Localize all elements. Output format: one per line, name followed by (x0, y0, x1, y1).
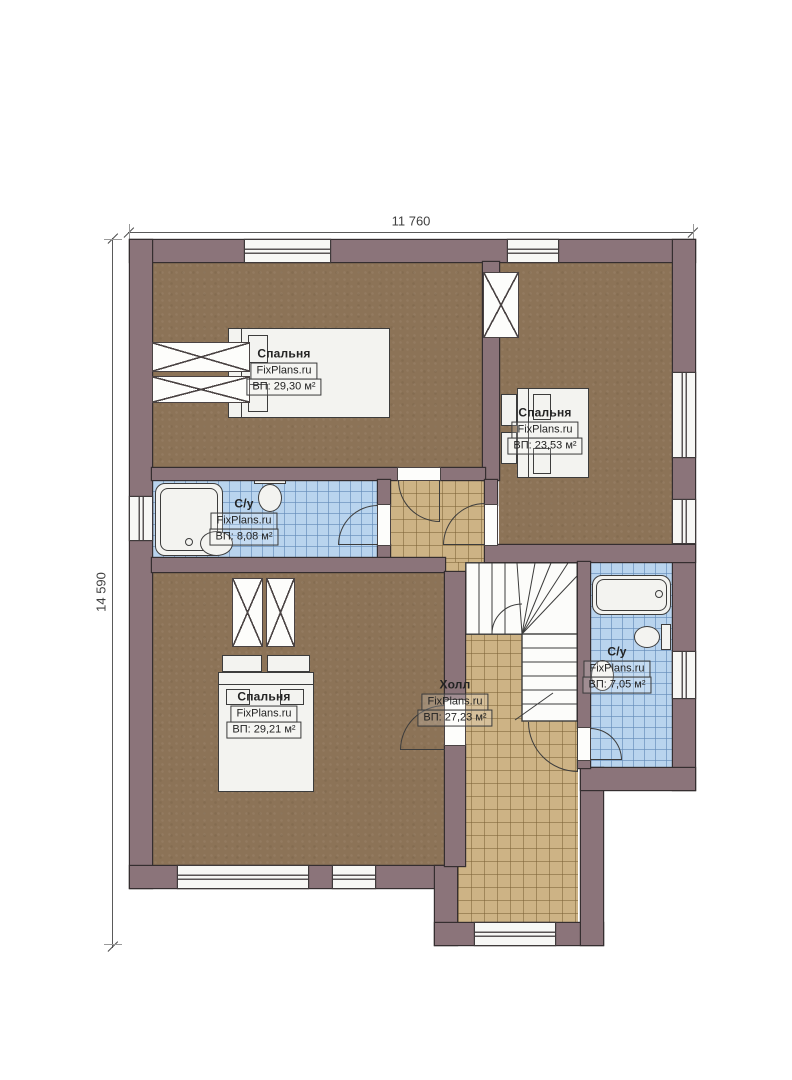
watermark-fixplans: FixPlans.ru (583, 661, 650, 678)
door-opening (378, 505, 390, 545)
nightstand (222, 655, 262, 672)
door-opening (485, 505, 497, 545)
dimension-extension (693, 224, 694, 240)
room-area: ВП: 29,21 м² (226, 721, 301, 738)
room-area: ВП: 7,05 м² (582, 676, 651, 693)
window (245, 240, 330, 262)
door-leaf (577, 722, 579, 772)
wall-bedroomTL-south-a (152, 468, 398, 480)
watermark-fixplans: FixPlans.ru (421, 694, 488, 711)
room-name: Спальня (237, 690, 290, 704)
room-area: ВП: 29,30 м² (246, 378, 321, 395)
door-leaf (590, 759, 622, 761)
wall-bathL-right-a (378, 480, 390, 505)
bathtub-drain (185, 538, 193, 546)
room-label-bedroom-top-right: Спальня FixPlans.ru ВП: 23,53 м² (507, 406, 582, 455)
nightstand (267, 655, 310, 672)
room-label-bedroom-top-left: Спальня FixPlans.ru ВП: 29,30 м² (246, 347, 321, 396)
room-label-hall: Холл FixPlans.ru ВП: 27,23 м² (417, 678, 492, 727)
window (333, 866, 375, 888)
door-leaf (400, 749, 445, 751)
wall-bathL-right-b (378, 545, 390, 558)
dimension-line-top (128, 232, 694, 233)
wardrobe (266, 578, 295, 647)
door-leaf (443, 544, 485, 546)
wall-exterior-left (130, 240, 152, 888)
dimension-extension (104, 944, 122, 945)
bathtub-drain (655, 590, 663, 598)
room-name: Холл (440, 678, 471, 692)
wall-bathR-left-b (578, 760, 590, 768)
wardrobe (232, 578, 263, 647)
watermark-fixplans: FixPlans.ru (230, 706, 297, 723)
floor-plan-canvas: Спальня FixPlans.ru ВП: 29,30 м² Спальня… (0, 0, 792, 1080)
wardrobe (152, 376, 250, 403)
wall-bedroomTR-south (485, 545, 695, 562)
wardrobe (152, 342, 250, 372)
room-label-bathroom-right: С/у FixPlans.ru ВП: 7,05 м² (582, 645, 651, 694)
ventilation-shaft (483, 272, 519, 338)
dimension-width-label: 11 760 (389, 214, 434, 229)
door-leaf (338, 544, 378, 546)
bed-headboard (218, 672, 314, 685)
wall-exterior-extension-right (581, 768, 603, 945)
window (178, 866, 308, 888)
dimension-height-label: 14 590 (94, 569, 109, 615)
door-opening (578, 728, 590, 760)
window (673, 500, 695, 543)
room-name: С/у (234, 497, 253, 511)
window (475, 923, 555, 945)
room-area: ВП: 23,53 м² (507, 437, 582, 454)
watermark-fixplans: FixPlans.ru (511, 422, 578, 439)
wall-exterior-bath-bottom (581, 768, 695, 790)
room-area: ВП: 27,23 м² (417, 709, 492, 726)
dimension-extension (129, 224, 130, 240)
room-name: С/у (607, 645, 626, 659)
wall-bathL-south (152, 558, 445, 572)
watermark-fixplans: FixPlans.ru (210, 513, 277, 530)
wall-bedroomBL-right-b (445, 745, 465, 866)
dimension-line-left (112, 238, 113, 948)
wall-bedroomTL-south-b (440, 468, 485, 480)
wall-corridor-right-a (485, 480, 497, 505)
wall-exterior-top (130, 240, 695, 262)
room-area: ВП: 8,08 м² (209, 528, 278, 545)
window (508, 240, 558, 262)
door-leaf (439, 480, 441, 522)
room-name: Спальня (257, 347, 310, 361)
room-name: Спальня (518, 406, 571, 420)
toilet-tank (661, 624, 671, 650)
dimension-extension (104, 239, 122, 240)
window (673, 652, 695, 698)
window (673, 373, 695, 457)
door-opening (398, 468, 440, 480)
room-label-bedroom-bottom-left: Спальня FixPlans.ru ВП: 29,21 м² (226, 690, 301, 739)
watermark-fixplans: FixPlans.ru (250, 363, 317, 380)
room-label-bathroom-left: С/у FixPlans.ru ВП: 8,08 м² (209, 497, 278, 546)
window (130, 497, 152, 540)
